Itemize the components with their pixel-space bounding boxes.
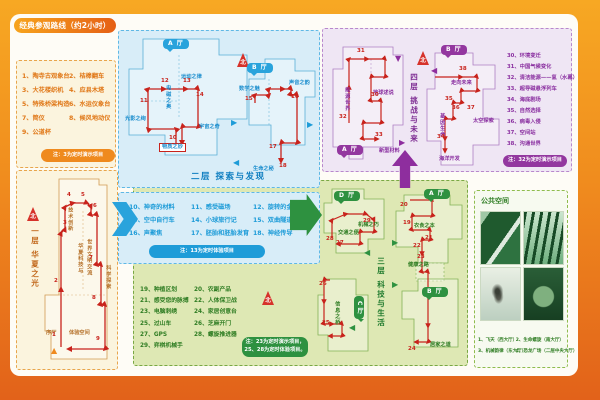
direction-arrow-icon: ▶ [307,121,313,129]
floor3-exhibit-list: 19、种植区划20、农副产品21、感受您的脉搏22、人体保卫战23、电脑刺绣24… [140,285,248,352]
exhibit-item: 10、神奇的材料 [129,201,191,214]
exhibit-item: 17、胚胎和胚胎发育 [191,227,253,240]
hall-badge: A 厅 [163,39,189,49]
poster-background: 经典参观路线（约2小时） 1、陶寺古观象台2、桔槔翻车3、大花楼织机4、应县木塔… [0,0,600,400]
public-space-captions: 1、飞天（西大厅）2、生命螺旋（南大厅）3、机械韵律（东大厅）4、恐龙广场（二层… [478,337,568,354]
exhibit-item: 38、沟通世界 [507,139,571,150]
floor3-note-line2: 25、28为定时体验项目。 [244,347,305,355]
exhibit-item: 1、陶寺古观象台 [22,70,69,84]
floor3-note-badge: 注：23为定时演示项目， 25、28为定时体验项目。 [242,337,308,357]
public-space-photos [480,211,564,321]
route-number: 38 [459,67,467,73]
direction-arrow-icon: ▲ [51,347,57,355]
exhibit-item: 22、人体保卫战 [194,296,248,307]
exhibit-item: 37、空间站 [507,128,571,139]
zone-label: 信息之桥 [334,301,339,326]
poster-title: 经典参观路线（约2小时） [19,20,110,31]
floor2-exhibit-list-panel: 10、神奇的材料11、感受磁场12、旋转的金蛋13、空中自行车14、小球旅行记1… [118,192,320,264]
exhibit-item: 30、环境变迁 [507,51,571,62]
exhibit-item: 25、过山车 [140,319,194,330]
exhibit-item: 9、公道杯 [22,126,69,140]
route-number: 16 [291,95,299,101]
zone-label: 光影之绚 [125,117,146,122]
public-space-panel: 公共空间 1、飞天（西大厅）2、生命螺旋（南大厅）3、机械韵律（东大厅）4、恐龙… [474,190,568,368]
poster-title-banner: 经典参观路线（约2小时） [14,18,116,33]
photo-relief-wall [523,267,564,321]
floor2-exhibit-list: 10、神奇的材料11、感受磁场12、旋转的金蛋13、空中自行车14、小球旅行记1… [129,201,315,240]
direction-arrow-icon: ◀ [364,249,370,257]
public-space-title: 公共空间 [481,196,509,206]
zone-label: 电磁之奥 [165,85,170,110]
exhibit-item: 31、中国气候变化 [507,62,571,73]
route-number: 5 [81,193,85,199]
exhibit-item: 29、弈棋机械手 [140,341,194,352]
exhibit-item: 13、空中自行车 [129,214,191,227]
route-number: 28 [326,237,334,243]
floor-title: 二层 探索与发现 [191,173,265,182]
exhibit-item: 11、感受磁场 [191,201,253,214]
floor2-map [119,31,321,189]
zone-label: 技术创新 [67,207,72,232]
route-number: 21 [425,236,433,242]
exhibit-item: 1、飞天（西大厅） [478,337,516,343]
exhibit-item: 4、恐龙广场（二层中央大厅） [516,348,568,354]
direction-arrow-icon: ▶ [399,139,405,147]
exhibit-item: 5、特殊桥梁构造 [22,98,69,112]
photo-dna-spiral-sculpture [523,211,564,265]
route-number: 2 [54,279,58,285]
hall-badge: D 厅 [334,191,360,201]
route-number: 31 [357,49,365,55]
route-number: 9 [96,337,100,343]
floor2-note-badge: 注：13为定时体验项目 [149,245,265,258]
route-number: 1 [52,333,56,339]
hall-badge: A 厅 [337,145,363,155]
route-number: 20 [400,203,408,209]
zone-label: 数学之魅 [239,87,260,92]
zone-label: 能源世界 [344,87,349,112]
direction-arrow-icon: ◀ [349,324,355,332]
zone-label: 衣食之本 [414,224,435,229]
exhibit-item: 34、海底剧场 [507,95,571,106]
exhibit-item: 32、清洁能源——氢（水幕） [507,73,571,84]
zone-label: 海洋开发 [439,157,460,162]
exhibit-item: 35、自然选择 [507,106,571,117]
route-number: 26 [319,282,327,288]
zone-label: 华夏科技与 [77,243,82,274]
exhibit-item: 2、桔槔翻车 [69,70,116,84]
exhibit-item: 4、应县木塔 [69,84,116,98]
route-number: 33 [375,133,383,139]
route-number: 23 [417,255,425,261]
direction-arrow-icon: ▶ [392,239,398,247]
hall-badge: B 厅 [247,63,273,73]
route-number: 24 [408,347,416,353]
compass-north-icon: 北 [417,51,429,65]
route-number: 4 [67,193,71,199]
compass-north-icon: 北 [27,207,39,221]
floor1-exhibit-list-panel: 1、陶寺古观象台2、桔槔翻车3、大花楼织机4、应县木塔5、特殊桥梁构造6、水运仪… [16,60,116,168]
hall-badge: A 厅 [424,189,450,199]
route-number: 6 [93,204,97,210]
zone-label: 科学探索 [105,265,110,290]
zone-label: 居家之道 [430,343,451,348]
exhibit-item: 23、电脑刺绣 [140,307,194,318]
photo-dinosaur-skeleton [480,267,521,321]
exhibit-item: 14、小球旅行记 [191,214,253,227]
floor-title: 一层 华夏之光 [31,227,39,289]
zone-label: 物质之妙 [159,143,186,152]
floor-title: 三层 科技与生活 [377,257,385,328]
route-number: 10 [169,136,177,142]
direction-arrow-icon: ▶ [231,119,237,127]
exhibit-item: 7、简仪 [22,112,69,126]
museum-route-poster: 经典参观路线（约2小时） 1、陶寺古观象台2、桔槔翻车3、大花楼织机4、应县木塔… [10,14,578,376]
zone-label: 太空探索 [473,119,494,124]
route-number: 25 [322,321,330,327]
floor2-note-text: 注：13为定时体验项目 [180,248,234,256]
hall-badge: B 厅 [422,287,448,297]
exhibit-item: 33、超导磁悬浮列车 [507,84,571,95]
hall-badge: B 厅 [441,45,467,55]
route-number: 3 [63,221,67,227]
direction-arrow-icon: ◀ [431,67,437,75]
exhibit-item: 28、螺旋推进器 [194,330,248,341]
floor1-exhibit-list: 1、陶寺古观象台2、桔槔翻车3、大花楼织机4、应县木塔5、特殊桥梁构造6、水运仪… [22,70,116,140]
direction-arrow-icon: ◀ [233,159,239,167]
floor2-map-panel: 北A 厅B 厅运动之律电磁之奥光影之绚宇宙之奇物质之妙数学之魅声音之韵生命之秘二… [118,30,320,188]
exhibit-item: 19、种植区划 [140,285,194,296]
direction-arrow-icon: ▼ [395,55,401,63]
floor4-exhibit-list: 30、环境变迁31、中国气候变化32、清洁能源——氢（水幕）33、超导磁悬浮列车… [507,51,571,150]
exhibit-item: 21、感受您的脉搏 [140,296,194,307]
exhibit-item: 16、声聚焦 [129,227,191,240]
route-number: 15 [245,97,253,103]
zone-label: 交通之便 [338,231,359,236]
exhibit-item: 20、农副产品 [194,285,248,296]
floor1-note-badge: 注：3为定时演示项目 [41,149,115,162]
exhibit-item: 26、芝麻开门 [194,319,248,330]
route-number: 36 [452,106,460,112]
zone-label: 声音之韵 [289,81,310,86]
zone-label: 健康之路 [408,263,429,268]
zone-label: 新型材料 [379,149,400,154]
exhibit-item: 6、水运仪象台 [69,98,116,112]
zone-label: 宇宙之奇 [199,125,220,130]
direction-arrow-icon: ▶ [392,281,398,289]
route-number: 13 [183,79,191,85]
route-number: 37 [467,106,475,112]
exhibit-item: 27、GPS [140,330,194,341]
route-number: 32 [339,115,347,121]
exhibit-item: 8、候风地动仪 [69,112,116,126]
route-number: 27 [336,241,344,247]
photo-feitian-sculpture [480,211,521,265]
hall-badge: C 厅 [354,296,364,319]
route-number: 19 [403,221,411,227]
floor3-note-line1: 注：23为定时演示项目， [245,339,304,347]
floor4-note-text: 注：32为定时演示项目 [508,157,562,165]
zone-label: 体验空间 [69,331,90,336]
exhibit-item: 3、大花楼织机 [22,84,69,98]
zone-label: 走向未来 [451,81,472,86]
route-number: 18 [279,164,287,170]
floor-title: 四层 挑战与未来 [410,73,418,144]
route-number: 30 [371,93,379,99]
route-number: 12 [161,79,169,85]
floor1-note-text: 注：3为定时演示项目 [53,152,103,160]
route-number: 8 [92,296,96,302]
route-number: 29 [363,219,371,225]
route-number: 22 [413,244,421,250]
floor4-section-panel: 30、环境变迁31、中国气候变化32、清洁能源——氢（水幕）33、超导磁悬浮列车… [322,28,572,172]
route-number: 35 [445,97,453,103]
route-number: 34 [437,135,445,141]
exhibit-item: 36、病毒入侵 [507,117,571,128]
floor1-map-panel: 北一层 华夏之光技术创新华夏科技与世界文明交流科学探索序厅体验空间▲123456… [16,170,118,370]
exhibit-item: 24、家居创意台 [194,307,248,318]
exhibit-item: 3、机械韵律（东大厅） [478,348,516,354]
exhibit-item: 2、生命螺旋（南大厅） [516,337,568,343]
floor4-note-badge: 注：32为定时演示项目 [503,155,567,167]
route-number: 14 [196,93,204,99]
compass-north-icon: 北 [262,291,274,305]
route-number: 11 [140,99,148,105]
route-number: 17 [269,145,277,151]
route-number: 7 [89,256,93,262]
